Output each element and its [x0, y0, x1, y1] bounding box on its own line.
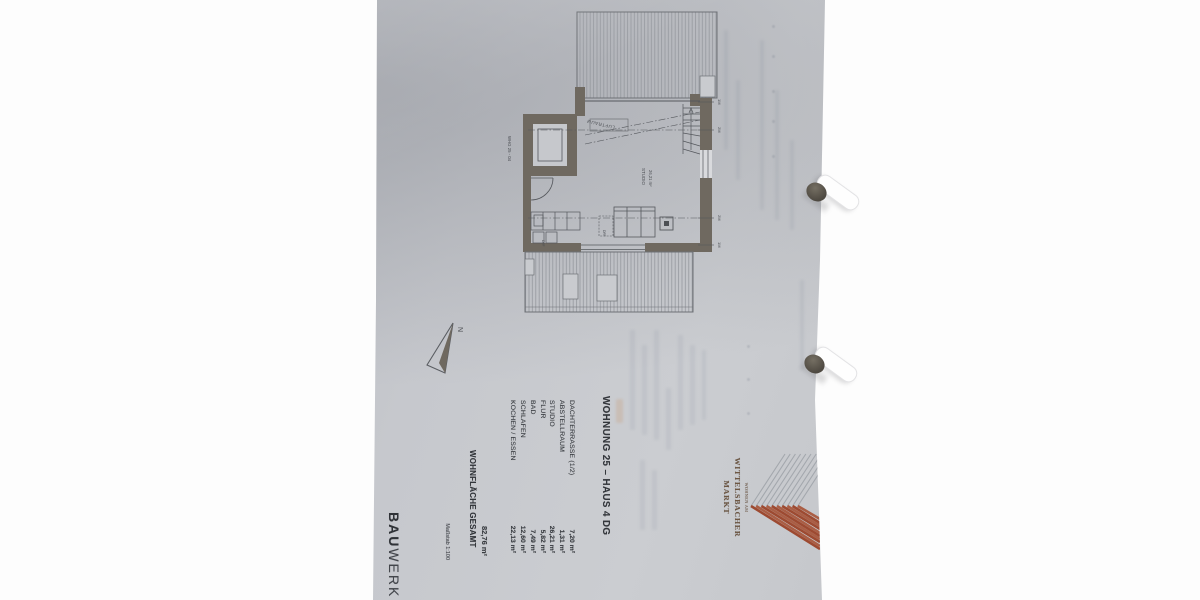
room-area: 26,21 m²: [548, 493, 555, 553]
room-area: 22,13 m²: [509, 493, 516, 553]
photo-of-floor-plan-page: LUFTRAUM 1M 2M 2M 1M STUDIO 26,21 m²: [0, 0, 1200, 600]
brand-logo-chevron: [748, 450, 820, 558]
staircase: [683, 104, 700, 154]
height-mark: 2M: [717, 215, 722, 221]
north-label: N: [456, 327, 463, 332]
room-label: STUDIO: [641, 168, 646, 186]
sofa: [614, 207, 655, 237]
floor-plan: LUFTRAUM 1M 2M 2M 1M STUDIO 26,21 m²: [490, 2, 735, 332]
north-arrow: N: [415, 315, 475, 383]
publisher-logo: BAUWERK: [386, 512, 402, 600]
room-area: 7,20 m²: [568, 493, 575, 553]
room-area-label: 26,21 m²: [648, 170, 653, 187]
room-area: 5,82 m²: [539, 493, 546, 553]
room-area: 7,49 m²: [529, 493, 536, 553]
void-label: LUFTRAUM: [586, 119, 615, 130]
room-name: ABSTELLRAUM: [558, 400, 565, 530]
terrace-door: [581, 245, 645, 250]
void-lines: [585, 112, 700, 144]
room-area: 1,31 m²: [558, 493, 565, 553]
height-ticks: [698, 102, 714, 245]
room-name: STUDIO: [548, 400, 555, 530]
height-mark: 1M: [717, 242, 722, 248]
scale-label: Maßstab 1:100: [444, 500, 450, 560]
total-area-value: 82,76 m²: [480, 480, 489, 556]
skylight-label: DFF: [541, 240, 545, 247]
height-mark: 2M: [717, 127, 722, 133]
height-mark: 1M: [717, 99, 722, 105]
skylight-label: DFF: [602, 230, 606, 237]
page-title: WOHNUNG 25 – HAUS 4 DG: [600, 396, 611, 566]
brand-kicker: WOHNEN AM: [744, 450, 749, 545]
brand-name-line1: WITTELSBACHER: [733, 450, 742, 545]
room-name: KOCHEN / ESSEN: [509, 400, 516, 530]
publisher-logo-light: WERK: [386, 548, 402, 598]
room-name: FLUR: [539, 400, 546, 530]
lower-terrace: [525, 252, 693, 312]
side-table: [660, 217, 673, 230]
upper-terrace: [575, 12, 717, 116]
brand-name-line2: MARKT: [722, 450, 731, 545]
walls: [523, 94, 712, 252]
room-name: SCHLAFEN: [519, 400, 526, 530]
roof-height-lines: [528, 130, 700, 218]
window: [700, 150, 712, 178]
elevator-shaft: [523, 114, 577, 176]
unit-label: WHG 25 - 04: [507, 136, 512, 162]
room-name: DACHTERRASSE (1/2): [568, 400, 575, 530]
skylight: [599, 216, 613, 236]
kitchen-counter: [531, 212, 580, 243]
shelf: [590, 119, 628, 131]
room-name: BAD: [529, 400, 536, 530]
door: [531, 178, 553, 200]
total-area-label: WOHNFLÄCHE GESAMT: [468, 450, 477, 562]
room-area: 12,60 m²: [519, 493, 526, 553]
publisher-logo-bold: BAU: [386, 512, 402, 548]
paper-sheet: LUFTRAUM 1M 2M 2M 1M STUDIO 26,21 m²: [0, 0, 1200, 600]
